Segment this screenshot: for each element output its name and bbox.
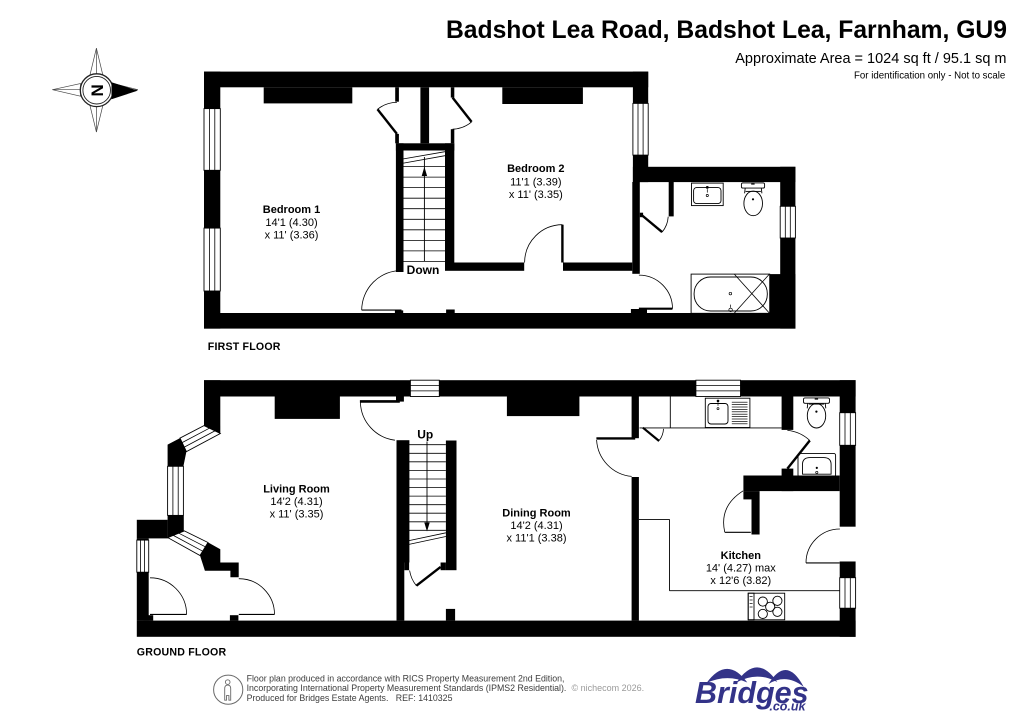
- svg-text:x 12'6 (3.82): x 12'6 (3.82): [710, 575, 771, 587]
- svg-text:.co.uk: .co.uk: [769, 700, 806, 714]
- svg-text:Bedroom 2: Bedroom 2: [507, 163, 564, 175]
- svg-text:Incorporating International Pr: Incorporating International Property Mea…: [247, 683, 567, 693]
- svg-text:Dining Room: Dining Room: [502, 508, 571, 520]
- svg-text:11'1 (3.39): 11'1 (3.39): [510, 177, 561, 189]
- svg-text:14'1 (4.30): 14'1 (4.30): [265, 217, 317, 229]
- svg-text:Badshot Lea Road, Badshot Lea,: Badshot Lea Road, Badshot Lea, Farnham, …: [446, 17, 1007, 44]
- svg-text:14'2 (4.31): 14'2 (4.31): [270, 496, 322, 508]
- svg-text:For identification only - Not: For identification only - Not to scale: [854, 70, 1005, 81]
- svg-text:Produced for Bridges Estate Ag: Produced for Bridges Estate Agents. REF:…: [247, 693, 453, 703]
- svg-text:Up: Up: [417, 428, 433, 442]
- svg-text:FIRST FLOOR: FIRST FLOOR: [208, 341, 281, 353]
- svg-text:Floor plan produced in accorda: Floor plan produced in accordance with R…: [247, 674, 565, 684]
- svg-text:x 11' (3.35): x 11' (3.35): [270, 509, 324, 521]
- svg-text:14'2 (4.31): 14'2 (4.31): [510, 520, 562, 532]
- svg-text:x 11'1 (3.38): x 11'1 (3.38): [507, 533, 567, 545]
- svg-text:Approximate Area = 1024 sq ft: Approximate Area = 1024 sq ft / 95.1 sq …: [735, 51, 1006, 67]
- svg-text:x 11' (3.35): x 11' (3.35): [509, 189, 563, 201]
- svg-text:Down: Down: [407, 263, 440, 277]
- svg-text:N: N: [87, 84, 106, 96]
- svg-text:Kitchen: Kitchen: [721, 550, 762, 562]
- svg-text:x 11' (3.36): x 11' (3.36): [265, 229, 319, 241]
- svg-text:© nichecom 2026.: © nichecom 2026.: [572, 683, 645, 693]
- svg-text:14' (4.27) max: 14' (4.27) max: [706, 563, 776, 575]
- svg-text:Bedroom 1: Bedroom 1: [263, 204, 320, 216]
- svg-text:Living Room: Living Room: [263, 484, 330, 496]
- svg-text:GROUND FLOOR: GROUND FLOOR: [137, 647, 227, 659]
